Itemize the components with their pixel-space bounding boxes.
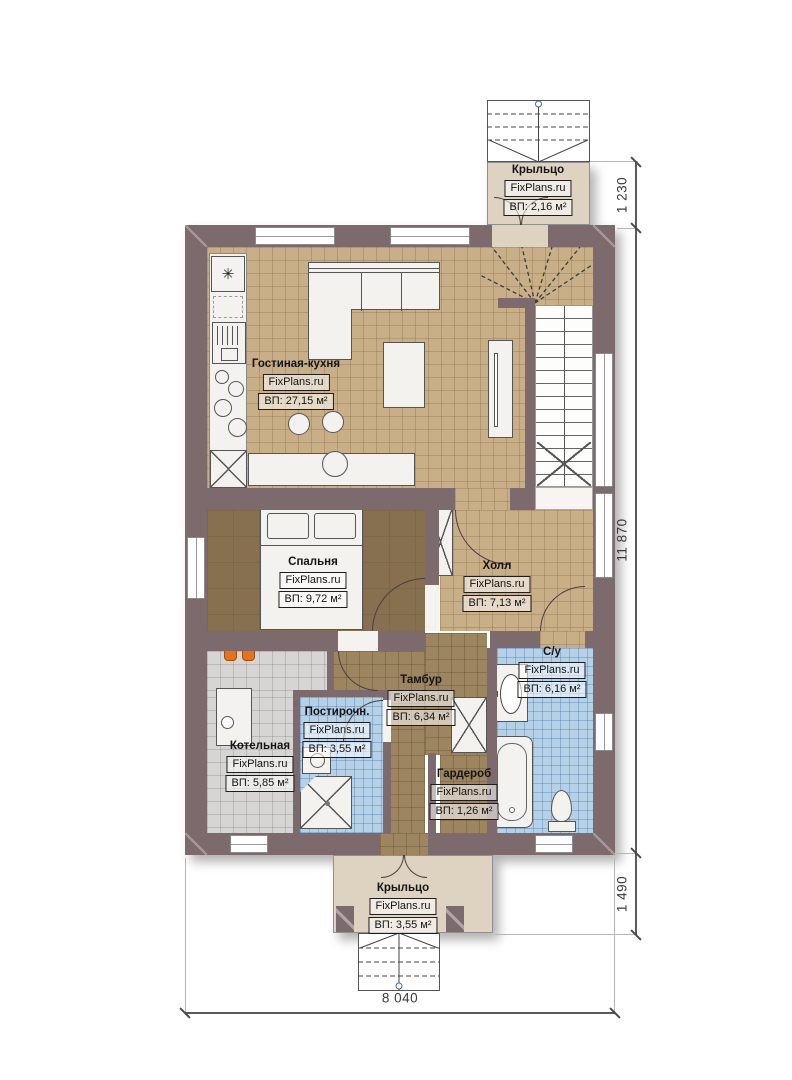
porch-column xyxy=(446,906,464,932)
wall-corner xyxy=(185,225,207,247)
oven-door xyxy=(221,348,238,361)
area-box: ВП: 3,55 м² xyxy=(368,917,437,934)
sofa-back-line xyxy=(309,268,439,273)
room-name: Холл xyxy=(483,560,512,572)
room-label-porch-bottom: Крыльцо FixPlans.ru ВП: 3,55 м² xyxy=(368,882,437,934)
dim-line-vertical xyxy=(635,162,637,228)
wall-bedroom-bottom-left xyxy=(207,631,338,651)
tv-icon xyxy=(494,353,498,427)
burner-icon xyxy=(228,381,244,397)
dim-value-house-width: 8 040 xyxy=(382,991,418,1006)
window xyxy=(535,835,573,853)
porch-column xyxy=(336,906,354,932)
area-box: ВП: 1,26 м² xyxy=(429,803,498,820)
dim-extension xyxy=(614,858,615,1012)
staircase-flight xyxy=(535,305,593,487)
dim-extension xyxy=(185,858,186,1012)
window xyxy=(255,227,335,245)
boiler-gauge xyxy=(221,716,234,729)
brand-box: FixPlans.ru xyxy=(504,180,571,197)
wall-living-bedroom xyxy=(207,488,455,510)
corner-cabinet xyxy=(210,450,247,488)
area-box: ВП: 7,13 м² xyxy=(462,595,531,612)
stair-break-lines xyxy=(537,442,591,486)
window xyxy=(187,537,205,599)
window xyxy=(595,353,613,487)
shower-drain xyxy=(325,801,330,806)
brand-box: FixPlans.ru xyxy=(303,722,370,739)
window xyxy=(595,713,613,751)
room-name: Котельная xyxy=(230,740,290,752)
room-name: Гардероб xyxy=(437,768,491,780)
sofa-divider xyxy=(361,273,362,311)
door-opening xyxy=(425,585,439,631)
pillow xyxy=(314,513,356,539)
stool xyxy=(322,411,344,433)
brand-box: FixPlans.ru xyxy=(262,374,329,391)
blanket-line xyxy=(261,545,362,546)
wall-stair-side xyxy=(525,298,535,488)
dim-line-vertical xyxy=(635,228,637,853)
sofa-divider xyxy=(401,273,402,311)
room-label-wardrobe: Гардероб FixPlans.ru ВП: 1,26 м² xyxy=(429,768,498,820)
dim-line-horizontal xyxy=(185,1012,615,1014)
room-label-laundry: Постирочн. FixPlans.ru ВП: 3,55 м² xyxy=(302,706,371,758)
area-box: ВП: 6,34 м² xyxy=(386,709,455,726)
winder-stairs xyxy=(480,247,593,305)
room-label-porch-top: Крыльцо FixPlans.ru ВП: 2,16 м² xyxy=(503,164,572,216)
room-label-living-kitchen: Гостиная-кухня FixPlans.ru ВП: 27,15 м² xyxy=(252,358,340,410)
room-label-vestibule: Тамбур FixPlans.ru ВП: 6,34 м² xyxy=(386,674,455,726)
boiler-unit xyxy=(216,688,252,746)
brand-box: FixPlans.ru xyxy=(463,576,530,593)
sofa-chaise xyxy=(308,309,352,360)
wall-bedroom-hall xyxy=(425,510,439,587)
brand-box: FixPlans.ru xyxy=(226,756,293,773)
area-box: ВП: 9,72 м² xyxy=(278,591,347,608)
toilet-bowl xyxy=(551,790,572,822)
wall-living-hall-stub xyxy=(510,488,535,510)
wall-laundry-top xyxy=(293,690,390,697)
toilet xyxy=(548,790,576,832)
snowflake-glyph: ✳ xyxy=(222,265,235,283)
stool xyxy=(322,451,348,477)
dim-value-porch-top: 1 230 xyxy=(615,177,630,213)
area-box: ВП: 3,55 м² xyxy=(302,741,371,758)
pillow xyxy=(267,513,309,539)
room-name: С/у xyxy=(543,646,561,658)
tv-stand xyxy=(488,340,513,438)
pot-icon xyxy=(228,418,247,437)
room-name: Крыльцо xyxy=(512,164,564,176)
brand-box: FixPlans.ru xyxy=(279,572,346,589)
area-box: ВП: 5,85 м² xyxy=(225,775,294,792)
dim-value-house-depth: 11 870 xyxy=(615,518,630,561)
window xyxy=(390,227,470,245)
wall-winder-stub xyxy=(498,298,535,308)
room-label-bathroom: С/у FixPlans.ru ВП: 6,16 м² xyxy=(517,646,586,698)
wall-corner xyxy=(185,833,207,855)
entrance-door-opening xyxy=(380,833,428,855)
room-label-boiler: Котельная FixPlans.ru ВП: 5,85 м² xyxy=(225,740,294,792)
porch-door-opening xyxy=(492,225,548,247)
door-opening xyxy=(455,488,510,510)
dim-extension xyxy=(590,161,638,162)
dim-line-vertical xyxy=(635,853,637,935)
room-name: Гостиная-кухня xyxy=(252,358,340,370)
window xyxy=(230,835,268,853)
brand-box: FixPlans.ru xyxy=(430,784,497,801)
room-label-bedroom: Спальня FixPlans.ru ВП: 9,72 м² xyxy=(278,556,347,608)
entry-steps-top xyxy=(487,100,590,162)
pot-icon xyxy=(214,399,232,417)
window xyxy=(595,493,613,578)
room-label-hall: Холл FixPlans.ru ВП: 7,13 м² xyxy=(462,560,531,612)
brand-box: FixPlans.ru xyxy=(387,690,454,707)
dim-value-porch-bottom: 1 490 xyxy=(615,876,630,912)
fridge-icon: ✳ xyxy=(211,256,245,292)
area-box: ВП: 6,16 м² xyxy=(517,681,586,698)
room-name: Тамбур xyxy=(400,674,442,686)
brand-box: FixPlans.ru xyxy=(518,662,585,679)
stair-landing xyxy=(535,487,593,510)
sofa xyxy=(308,262,440,310)
room-name: Спальня xyxy=(288,556,338,568)
stool xyxy=(288,413,310,435)
area-box: ВП: 27,15 м² xyxy=(258,393,333,410)
burner-icon xyxy=(215,370,229,384)
area-box: ВП: 2,16 м² xyxy=(503,199,572,216)
bathtub-drain xyxy=(509,807,515,813)
wall-laundry-right-lower xyxy=(383,742,391,833)
door-opening xyxy=(338,631,378,651)
coffee-table xyxy=(383,342,425,408)
entry-steps-bottom xyxy=(358,933,440,991)
wall-bedroom-bottom-right xyxy=(378,631,425,651)
wardrobe-cabinet xyxy=(451,697,487,753)
room-name: Постирочн. xyxy=(305,706,370,718)
wall-corner xyxy=(593,225,615,247)
floor-plan-canvas: ✳ xyxy=(0,0,792,1080)
toilet-tank xyxy=(548,821,576,832)
oven-grill-lines xyxy=(217,326,242,345)
brand-box: FixPlans.ru xyxy=(369,898,436,915)
kitchen-cabinet-dashed xyxy=(213,296,243,318)
oven-icon xyxy=(212,322,246,364)
wall-corner xyxy=(593,833,615,855)
room-name: Крыльцо xyxy=(377,882,429,894)
dim-extension xyxy=(495,934,637,935)
